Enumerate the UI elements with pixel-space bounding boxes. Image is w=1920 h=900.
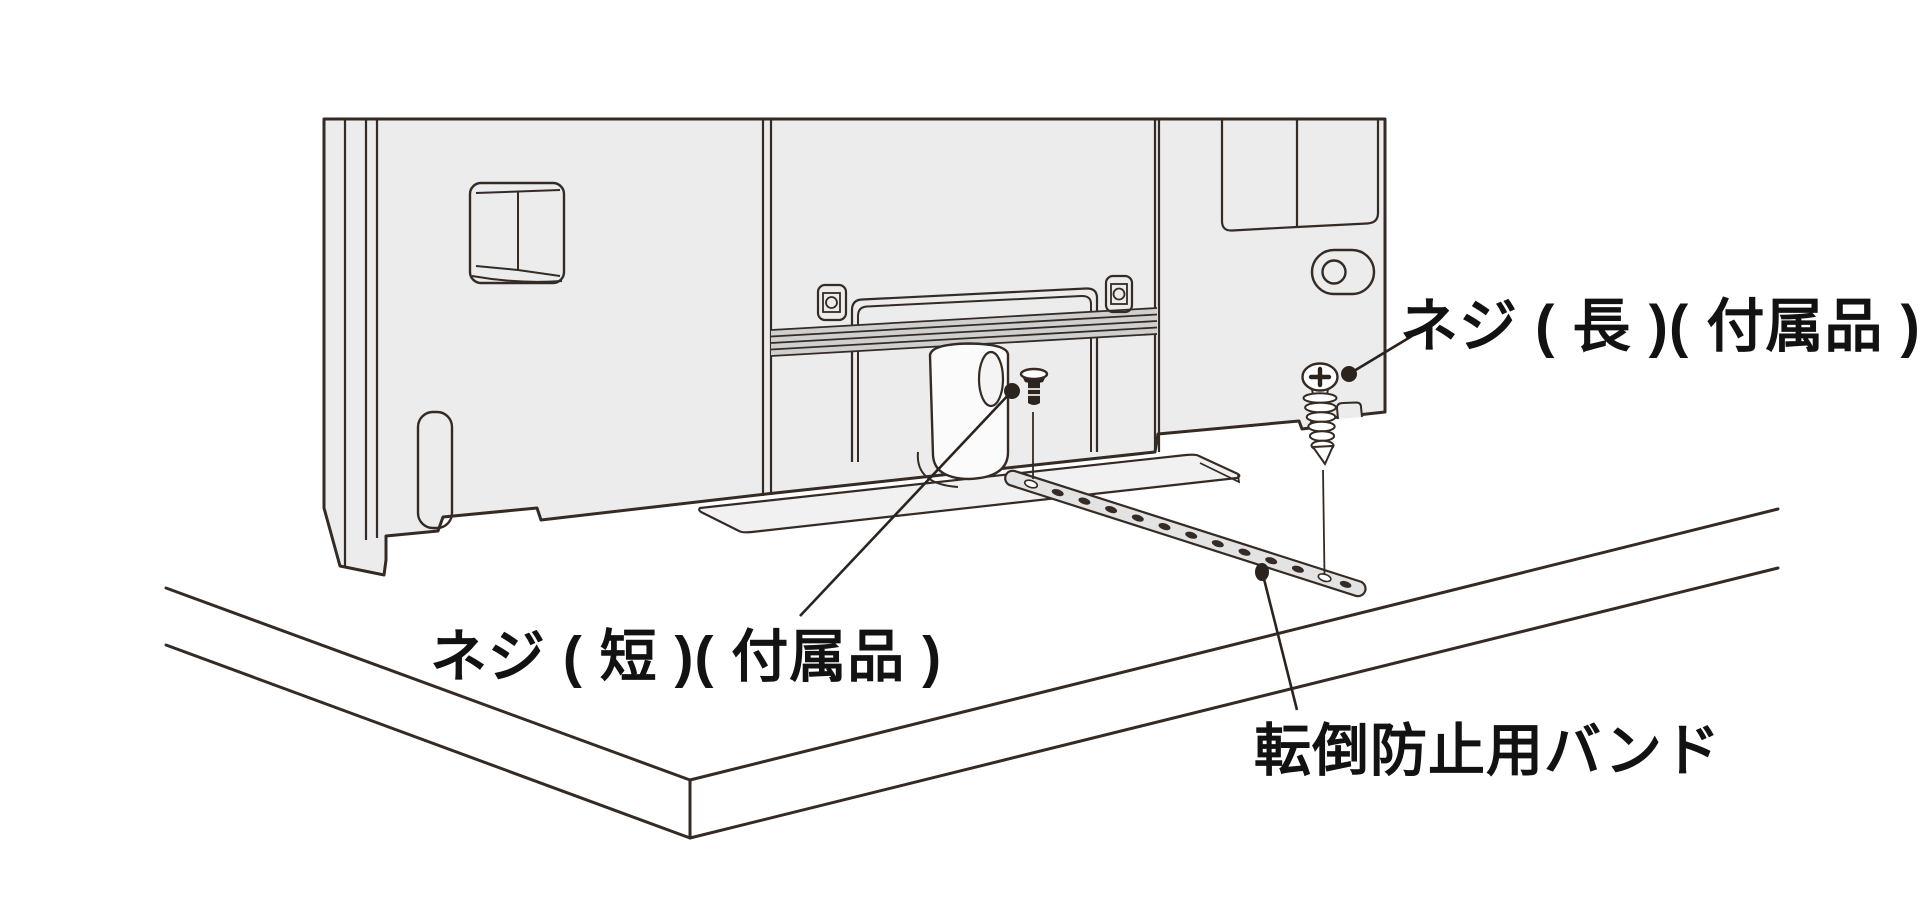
table-front-bottom-edge [690, 568, 1778, 838]
band-leader-line [1263, 575, 1297, 710]
screw-threads [1304, 393, 1337, 464]
short-screw-leader-dot [1004, 383, 1020, 399]
cable-hole [979, 352, 1003, 406]
band-bracket-lug [1337, 403, 1362, 420]
anti-tip-band [1005, 471, 1365, 596]
label-screw-long: ネジ ( 長 )( 付属品 ) [1400, 294, 1920, 359]
long-screw-leader-dot [1341, 366, 1357, 382]
installation-diagram: ネジ ( 短 )( 付属品 ) ネジ ( 長 )( 付属品 ) 転倒防止用バンド [0, 0, 1920, 900]
label-screw-short: ネジ ( 短 )( 付属品 ) [430, 625, 942, 689]
illustration-canvas: ネジ ( 短 )( 付属品 ) ネジ ( 長 )( 付属品 ) 転倒防止用バンド [0, 0, 1920, 900]
label-anti-tip-band: 転倒防止用バンド [1254, 719, 1721, 783]
long-screw-guide-line [1323, 470, 1325, 575]
band-leader-dot [1255, 563, 1269, 581]
table-surface [166, 509, 1778, 838]
